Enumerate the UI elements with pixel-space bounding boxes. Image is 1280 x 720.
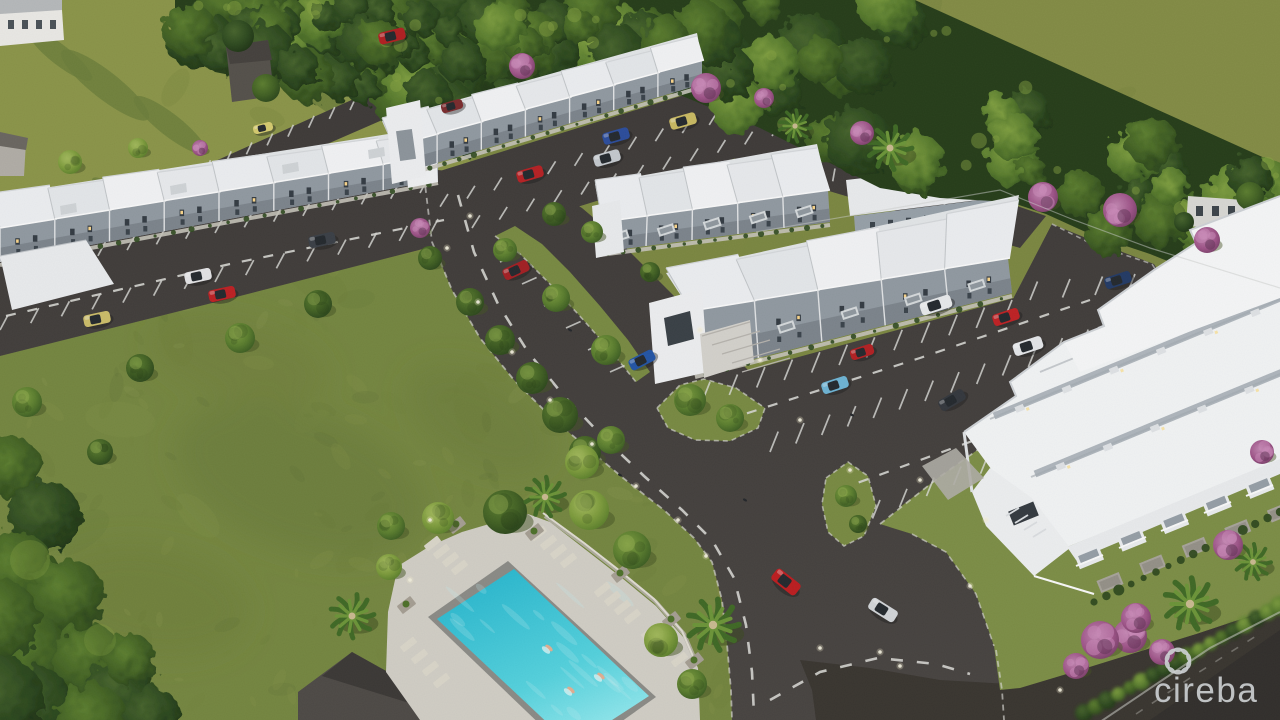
svg-text:cireba: cireba — [1154, 671, 1258, 710]
